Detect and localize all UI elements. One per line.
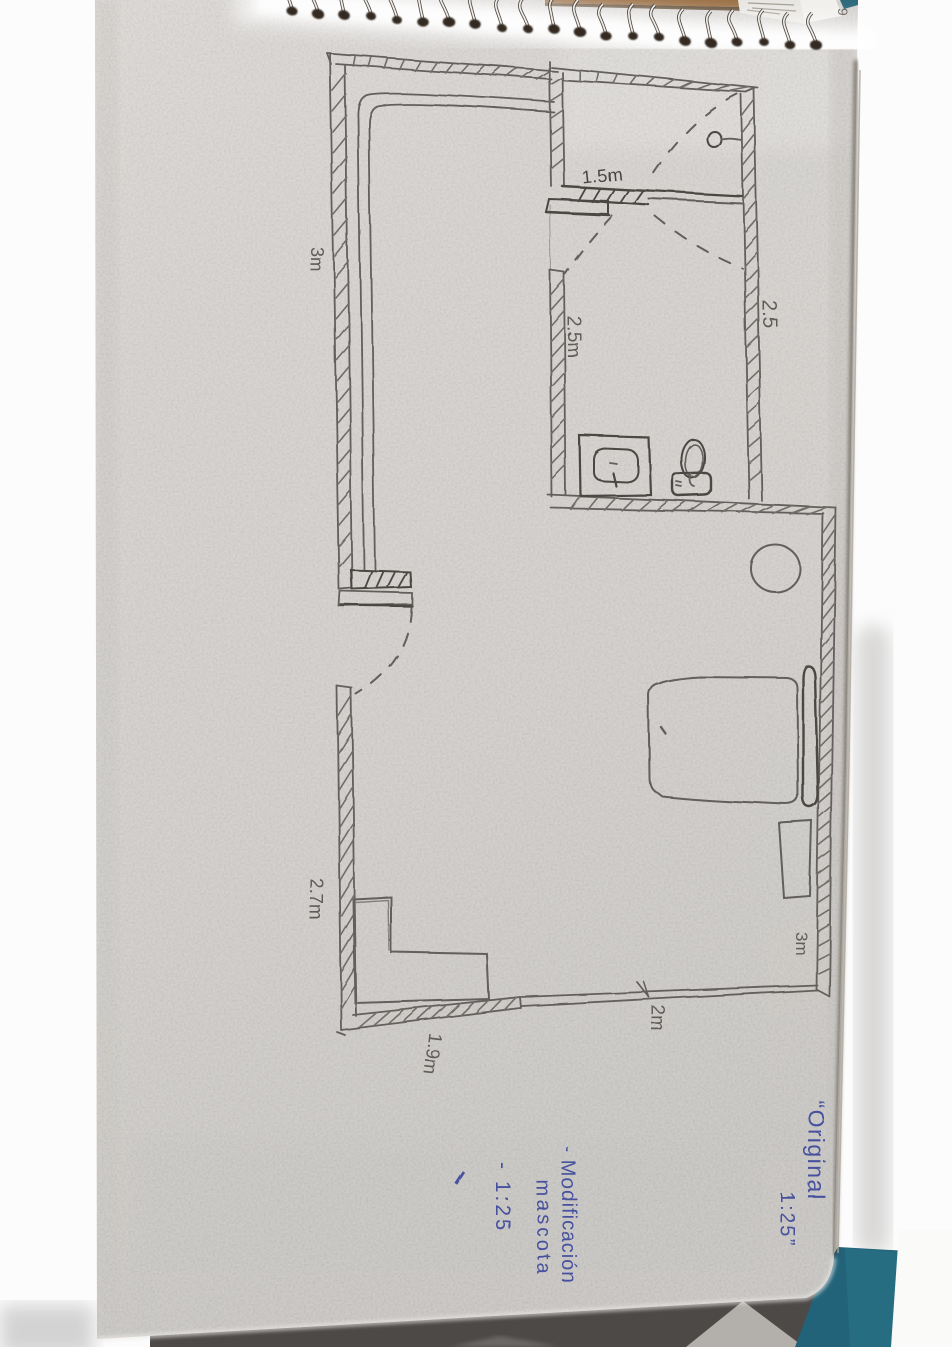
svg-text:2.7m: 2.7m	[305, 878, 326, 920]
svg-text:- 1:25: - 1:25	[491, 1162, 514, 1234]
svg-text:1:25”: 1:25”	[776, 1192, 798, 1248]
svg-text:“Original: “Original	[803, 1100, 829, 1200]
svg-text:mascota: mascota	[532, 1180, 554, 1277]
svg-text:2.5: 2.5	[758, 300, 780, 328]
svg-text:3m: 3m	[307, 247, 327, 272]
svg-text:9: 9	[835, 8, 851, 16]
svg-text:3m: 3m	[792, 932, 811, 956]
svg-text:2m: 2m	[646, 1004, 667, 1030]
svg-text:1.5m: 1.5m	[581, 164, 623, 188]
svg-text:- Modificación: - Modificación	[557, 1146, 579, 1283]
svg-text:2.5m: 2.5m	[563, 316, 584, 358]
